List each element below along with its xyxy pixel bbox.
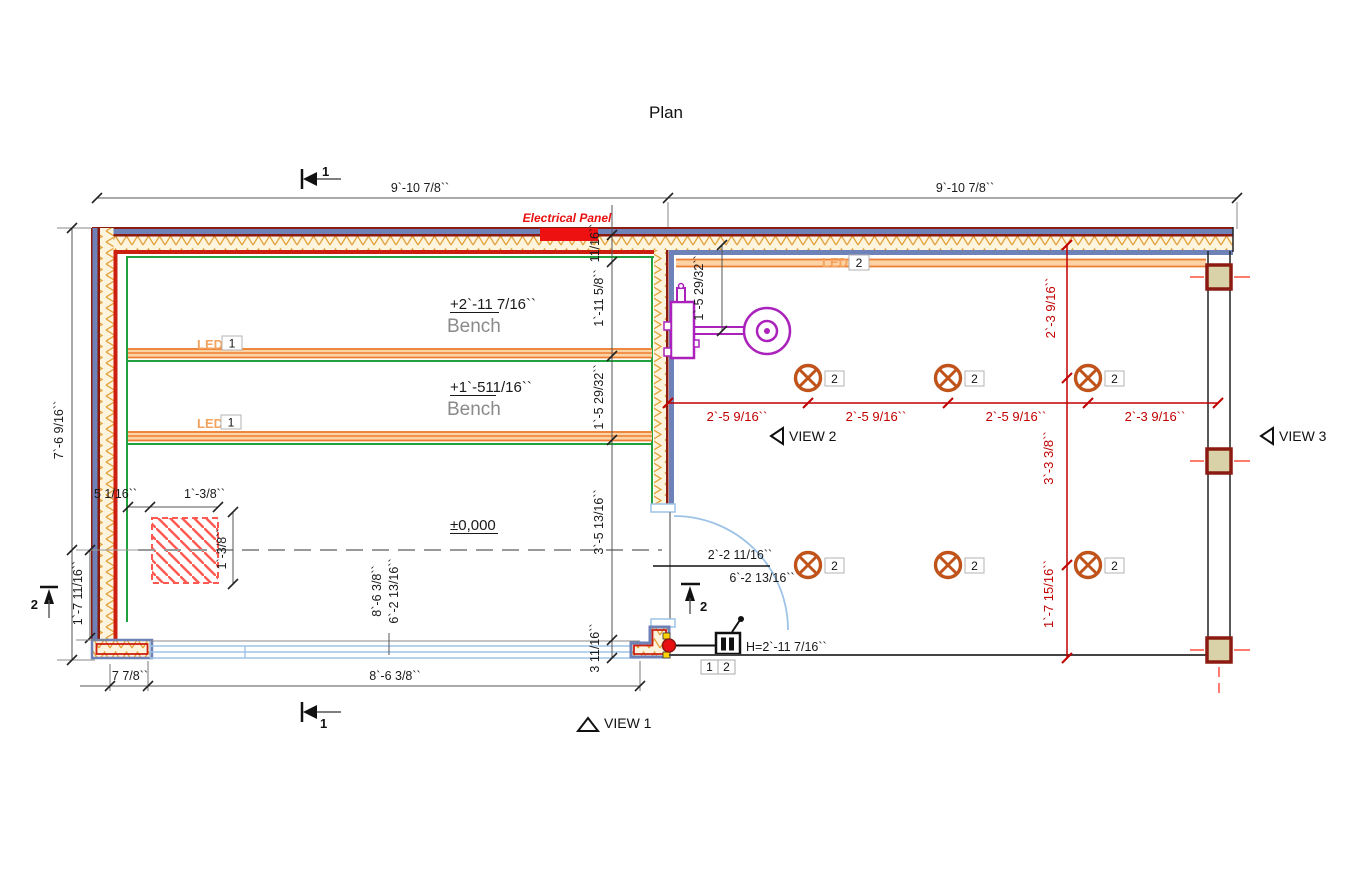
light-3: 2 xyxy=(1076,366,1125,391)
dim-mid-wall: 11/16`` xyxy=(588,224,602,263)
dim-square-width: 1`-3/8`` xyxy=(184,487,225,501)
dim-lights-spacing-2: 2`-5 9/16`` xyxy=(846,409,907,424)
light-tag: 2 xyxy=(831,372,838,386)
dim-mid-floor: 3`-5 13/16`` xyxy=(592,489,606,554)
section-marker-1-bottom: 1 xyxy=(302,702,341,731)
door-jamb-wall xyxy=(631,627,676,658)
dim-top-left: 9`-10 7/8`` xyxy=(391,181,449,195)
light-5: 2 xyxy=(936,553,985,578)
light-6: 2 xyxy=(1076,553,1125,578)
red-dimension-grid xyxy=(663,240,1223,663)
view-marker-3: VIEW 3 xyxy=(1261,428,1327,444)
dim-square-height: 1`-3/8`` xyxy=(215,529,229,570)
section-number: 1 xyxy=(322,164,329,179)
view-label: VIEW 3 xyxy=(1279,428,1327,444)
column-middle xyxy=(1190,449,1250,473)
plan-drawing: Plan 9`-10 7/8`` 9`-10 7/8`` xyxy=(0,0,1366,877)
door-hinge xyxy=(663,639,676,652)
door-offset-annotation: 2`-2 11/16`` 6`-2 13/16`` xyxy=(653,548,795,585)
dim-lights-mid-v: 3`-3 3/8`` xyxy=(1041,431,1056,484)
column-top xyxy=(1190,265,1250,289)
column-bottom xyxy=(1190,638,1250,696)
bench2-name: Bench xyxy=(447,399,501,420)
light-tag: 2 xyxy=(971,559,978,573)
led-group-tag: 2 xyxy=(856,256,863,270)
light-tag: 2 xyxy=(1111,372,1118,386)
partition-wall xyxy=(651,250,675,512)
dim-square-offset: 5 1/16`` xyxy=(94,487,137,501)
dim-mid-bottom: 3 11/16`` xyxy=(588,623,602,672)
section-number: 2 xyxy=(700,599,707,614)
dim-lights-bottom-v: 1`-7 15/16`` xyxy=(1041,560,1056,628)
light-tag: 2 xyxy=(1111,559,1118,573)
light-tag: 2 xyxy=(971,372,978,386)
led-label-2: LED 2 xyxy=(822,255,869,270)
dim-lights-end: 2`-3 9/16`` xyxy=(1125,409,1186,424)
view-marker-2: VIEW 2 xyxy=(771,428,837,444)
left-wall-foot xyxy=(92,640,152,658)
section-marker-2-left: 2 xyxy=(31,587,58,618)
door-offset-bottom: 6`-2 13/16`` xyxy=(729,571,794,585)
dim-left-height: 7`-6 9/16`` xyxy=(52,401,66,459)
section-number: 2 xyxy=(31,597,38,612)
dim-room-width: 8`-6 3/8`` xyxy=(370,565,384,616)
led-label-1a: LED 1 xyxy=(197,336,242,352)
switch-height-note: H=2`-11 7/16`` xyxy=(746,640,827,654)
section-number: 1 xyxy=(320,716,327,731)
bench-1-label: +2`-11 7/16`` Bench xyxy=(447,296,536,337)
bench2-level: +1`-511/16`` xyxy=(450,379,532,396)
dim-lights-spacing-3: 2`-5 9/16`` xyxy=(986,409,1047,424)
bench-2-label: +1`-511/16`` Bench xyxy=(447,379,532,420)
bench1-name: Bench xyxy=(447,316,501,337)
light-1: 2 xyxy=(796,366,845,391)
led-text: LED xyxy=(197,416,223,431)
right-room-led-strip xyxy=(676,259,1206,267)
dim-mid-bench2: 1`-5 29/32`` xyxy=(592,364,606,429)
led-label-1b: LED 1 xyxy=(197,415,241,431)
light-tag: 2 xyxy=(831,559,838,573)
view-marker-1: VIEW 1 xyxy=(578,715,652,731)
electrical-panel-label: Electrical Panel xyxy=(523,211,612,225)
switch-tag-2: 2 xyxy=(723,660,730,674)
floor-level: ±0,000 xyxy=(450,517,496,534)
left-wall xyxy=(91,228,118,640)
door-offset-top: 2`-2 11/16`` xyxy=(708,548,772,562)
switch-group-tags: 1 2 xyxy=(701,660,735,674)
dim-top-right: 9`-10 7/8`` xyxy=(936,181,994,195)
dim-left-lower: 1`-7 11/16`` xyxy=(71,561,85,625)
floor-plan-canvas: Plan 9`-10 7/8`` 9`-10 7/8`` xyxy=(0,0,1366,877)
floor-level-label: ±0,000 xyxy=(450,517,498,534)
view-label: VIEW 2 xyxy=(789,428,837,444)
wall-fixture xyxy=(664,284,790,359)
view-label: VIEW 1 xyxy=(604,715,652,731)
section-marker-1-top: 1 xyxy=(302,164,341,189)
floor-opening-hatch xyxy=(152,518,218,583)
dim-room-depth: 6`-2 13/16`` xyxy=(387,558,401,623)
right-wall xyxy=(1208,227,1233,655)
window-wall xyxy=(150,641,640,658)
bench1-level: +2`-11 7/16`` xyxy=(450,296,536,313)
page-title: Plan xyxy=(649,103,683,122)
light-2: 2 xyxy=(936,366,985,391)
dim-bottom-width: 8`-6 3/8`` xyxy=(369,669,420,683)
bottom-dimension-lines xyxy=(80,661,645,691)
ceiling-lights: 2 2 2 2 2 xyxy=(796,366,1125,578)
dim-mid-bench1: 1`-11 5/8`` xyxy=(592,269,606,326)
led-group-tag: 1 xyxy=(229,337,236,351)
section-marker-2-right: 2 xyxy=(681,584,707,614)
led-text: LED xyxy=(197,337,223,352)
dim-bottom-foot: 7 7/8`` xyxy=(112,669,148,683)
switch xyxy=(676,616,744,654)
dim-fixture-drop: 1`-5 29/32`` xyxy=(692,255,706,320)
light-4: 2 xyxy=(796,553,845,578)
dim-lights-top-v: 2`-3 9/16`` xyxy=(1043,278,1058,339)
dim-lights-spacing-1: 2`-5 9/16`` xyxy=(707,409,768,424)
led-text: LED xyxy=(822,255,848,270)
led-group-tag: 1 xyxy=(228,416,235,430)
top-dimension xyxy=(92,193,1242,229)
bench-led-strip-2 xyxy=(128,431,652,444)
switch-tag-1: 1 xyxy=(706,660,713,674)
